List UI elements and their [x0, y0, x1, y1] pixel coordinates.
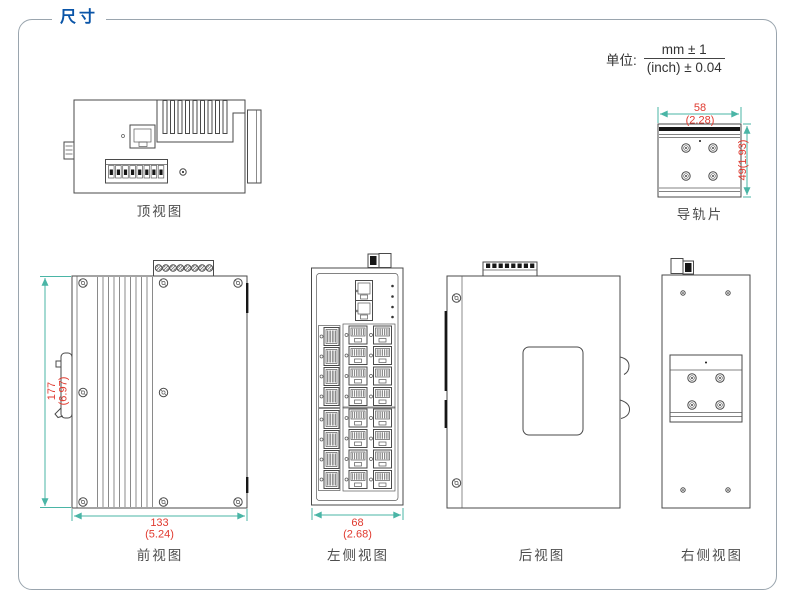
- left-view-body: [312, 268, 404, 505]
- rj45-port: [345, 326, 367, 344]
- rj45-port: [370, 450, 392, 468]
- back-view-label-area: [523, 347, 583, 435]
- front-view-terminal-block: [154, 261, 214, 277]
- top-view-drawing: 顶视图: [64, 100, 261, 219]
- front-view-dimensions: 177 (6.97) 133 (5.24): [40, 277, 247, 541]
- dimension-sheet: 尺寸 单位: mm ± 1 (inch) ± 0.04: [0, 0, 800, 599]
- drawing-canvas: 顶视图 58 (2.28) 49(1.93): [0, 0, 800, 599]
- back-view-screw: [452, 479, 460, 487]
- left-view-dimensions: 68 (2.68): [312, 508, 403, 541]
- rj45-port: [345, 388, 367, 406]
- rail-height-dim: 49(1.93): [737, 140, 749, 181]
- left-view-top-connector: [368, 254, 391, 268]
- rj45-port: [370, 409, 392, 427]
- rj45-port: [320, 368, 339, 386]
- rj45-port: [345, 471, 367, 489]
- rj45-port: [345, 347, 367, 365]
- rj45-port: [370, 367, 392, 385]
- rail-body: [658, 124, 741, 197]
- back-view-terminal-block: [483, 262, 537, 276]
- rj45-port: [370, 347, 392, 365]
- rj45-port: [345, 430, 367, 448]
- back-view-drawing: 后视图: [445, 262, 630, 563]
- left-width-inch: (2.68): [343, 529, 372, 541]
- back-view-label: 后视图: [519, 548, 566, 563]
- front-width-inch: (5.24): [145, 529, 174, 541]
- rail-dimensions: 58 (2.28) 49(1.93): [658, 102, 751, 197]
- rail-screw: [682, 172, 690, 180]
- rj45-port: [345, 450, 367, 468]
- right-view-hole: [726, 291, 730, 295]
- back-view-screw: [452, 294, 460, 302]
- rj45-port: [370, 430, 392, 448]
- rj45-port: [320, 328, 339, 346]
- right-view-drawing: 右侧视图: [662, 259, 750, 564]
- front-width-mm: 133: [150, 517, 168, 529]
- left-width-mm: 68: [351, 517, 363, 529]
- rail-screw: [709, 172, 717, 180]
- top-view-label: 顶视图: [137, 204, 184, 219]
- front-height-mm: 177: [46, 382, 58, 400]
- left-view-drawing: 68 (2.68) 左侧视图: [312, 254, 404, 564]
- rj45-port: [320, 451, 339, 469]
- top-view-din-plate: [248, 110, 262, 183]
- rail-screw: [709, 144, 717, 152]
- right-view-din-mount-plate: [670, 355, 742, 422]
- rj45-port: [345, 409, 367, 427]
- top-view-side-connector: [64, 142, 74, 159]
- right-view-body: [662, 275, 750, 508]
- right-view-hole: [681, 291, 685, 295]
- rj45-port: [320, 431, 339, 449]
- rj45-port: [345, 367, 367, 385]
- rail-width-inch: (2.28): [686, 115, 715, 127]
- front-view-heatsink-fins: [98, 277, 153, 507]
- rj45-port: [320, 348, 339, 366]
- rail-label: 导轨片: [677, 207, 724, 222]
- right-view-label: 右侧视图: [681, 548, 743, 563]
- back-view-body: [447, 276, 620, 508]
- left-view-label: 左侧视图: [327, 548, 389, 563]
- right-view-top-connector: [671, 259, 694, 275]
- right-view-hole: [726, 488, 730, 492]
- rj45-port: [370, 326, 392, 344]
- rail-drawing: 58 (2.28) 49(1.93) 导轨片: [658, 102, 751, 222]
- rj45-port: [370, 471, 392, 489]
- rail-width-mm: 58: [694, 102, 706, 114]
- front-view-label: 前视图: [137, 547, 184, 563]
- rj45-port: [320, 471, 339, 489]
- rj45-port: [320, 388, 339, 406]
- back-view-din-clip: [620, 357, 630, 419]
- right-view-hole: [681, 488, 685, 492]
- rj45-port: [370, 388, 392, 406]
- front-height-inch: (6.97): [58, 377, 70, 406]
- top-view-ground-screw: [180, 169, 186, 175]
- front-view-drawing: 177 (6.97) 133 (5.24) 前视图: [40, 261, 248, 564]
- top-view-console-port: [122, 125, 156, 148]
- left-view-sfp-slots: [356, 281, 373, 321]
- rail-screw: [682, 144, 690, 152]
- top-view-terminal-block: [106, 160, 168, 184]
- rj45-port: [320, 411, 339, 429]
- top-view-heatsink-fins: [163, 101, 227, 134]
- left-view-led-indicators: [391, 285, 394, 319]
